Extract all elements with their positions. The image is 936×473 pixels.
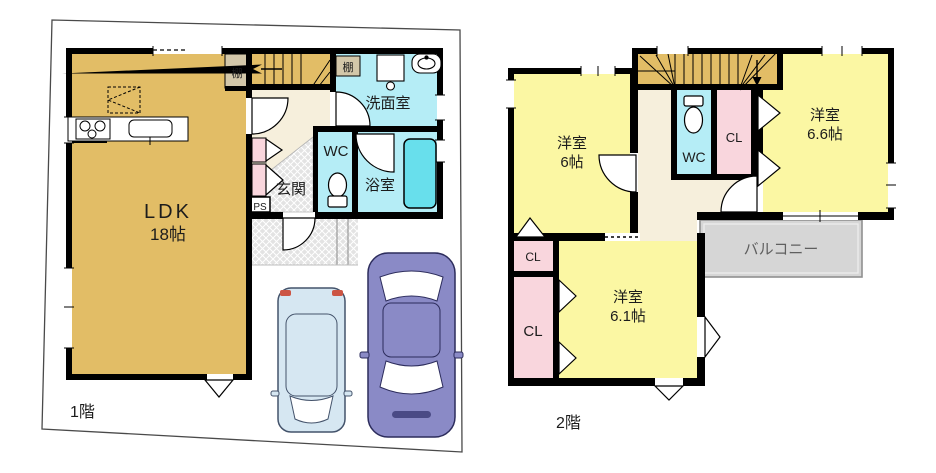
car-sedan [360, 253, 463, 437]
floor1-label: 1階 [70, 403, 95, 421]
closet-upper-label: CL [525, 250, 541, 264]
room-west-size: 6帖 [560, 154, 583, 171]
toilet-icon-1f [328, 173, 347, 207]
tail-light-icon [332, 290, 343, 296]
room-south-side-door [705, 317, 720, 357]
ldk-label: LDK [144, 201, 192, 223]
genkan-label: 玄関 [276, 181, 306, 198]
floor2: 洋室 6帖 洋室 6.6帖 洋室 6.1帖 WC CL CL CL バルコニー … [506, 46, 896, 432]
kitchen-sink-icon [129, 120, 172, 137]
washroom-label: 洗面室 [365, 95, 410, 112]
room-east-size: 6.6帖 [807, 126, 843, 143]
floor-plan-canvas: LDK 18帖 玄関 WC 洗面室 浴室 棚 棚 PS 1階 [0, 0, 936, 473]
toilet-icon-2f [684, 96, 703, 133]
bathroom-label: 浴室 [365, 177, 395, 194]
ps-label: PS [253, 202, 267, 213]
room-west-label: 洋室 [557, 135, 587, 152]
closet-1f-a [252, 138, 266, 162]
floor-plan: LDK 18帖 玄関 WC 洗面室 浴室 棚 棚 PS 1階 [0, 0, 936, 473]
shelf-ldk-label: 棚 [232, 66, 243, 80]
room-south-size: 6.1帖 [610, 308, 646, 325]
kitchen-counter [68, 117, 188, 145]
ldk-size-label: 18帖 [150, 225, 186, 244]
wc-1f-label: WC [324, 143, 349, 160]
shelf-washroom-label: 棚 [343, 60, 354, 74]
room-south-bottom-door [655, 386, 683, 400]
room-east-label: 洋室 [810, 107, 840, 124]
closet-lower-label: CL [523, 323, 542, 340]
floor2-label: 2階 [556, 414, 581, 432]
balcony-label: バルコニー [744, 241, 819, 258]
closet-east-label: CL [726, 130, 743, 145]
tail-light-icon [280, 290, 291, 296]
closet-1f-b [252, 164, 266, 196]
car-compact [271, 288, 352, 432]
room-south-label: 洋室 [613, 289, 643, 306]
sink-icon [412, 54, 441, 73]
open-passage-dashed [605, 233, 640, 241]
wc-2f-label: WC [682, 149, 705, 165]
floor1: LDK 18帖 玄関 WC 洗面室 浴室 棚 棚 PS 1階 [42, 20, 463, 452]
bathtub-icon [404, 139, 436, 208]
